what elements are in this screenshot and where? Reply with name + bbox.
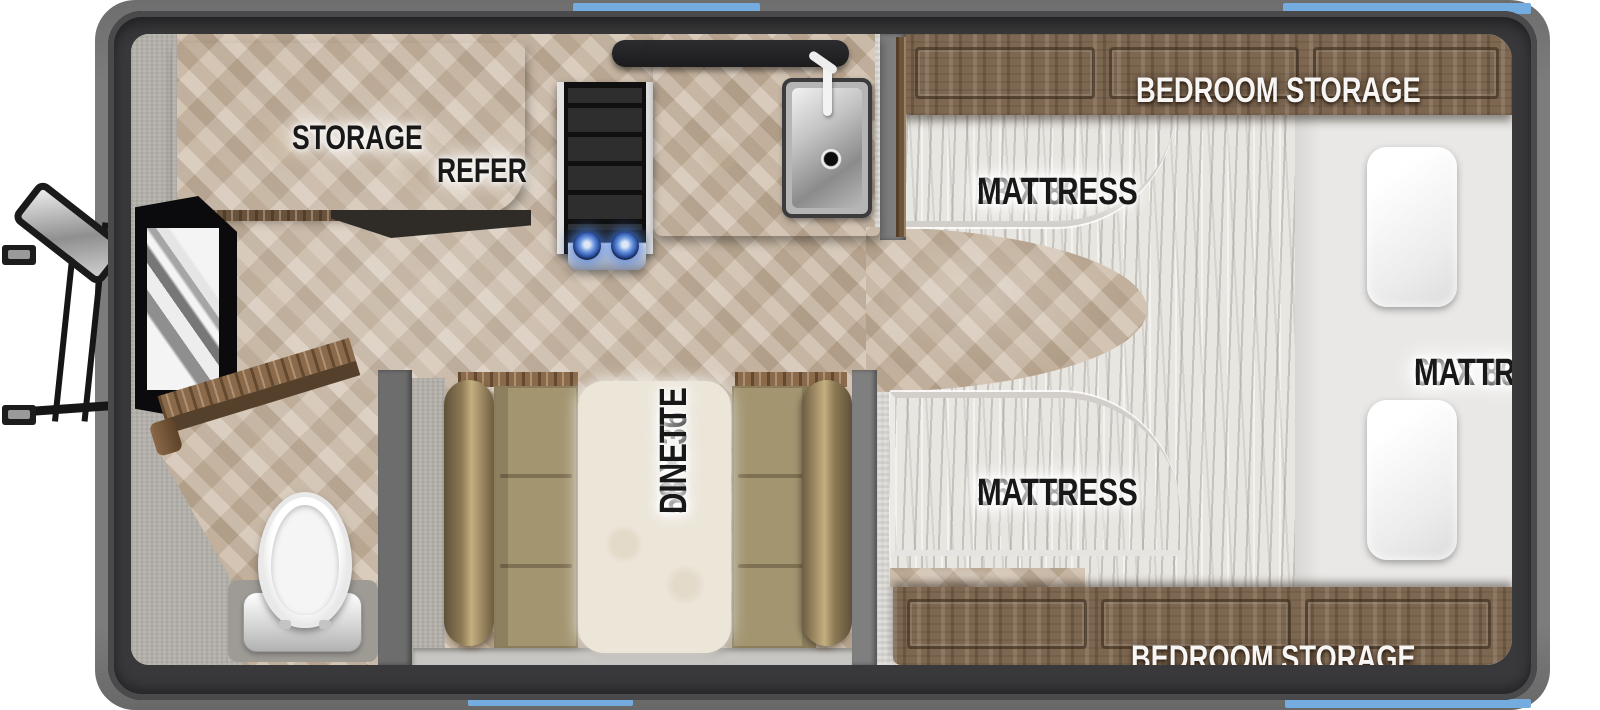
dinette-bench-left — [494, 386, 578, 648]
camper-interior: STORAGE REFER BEDROOM STORAGE BEDROOM ST… — [131, 34, 1512, 665]
cushion-edge — [496, 388, 508, 646]
step-rail — [32, 401, 110, 415]
cushion-seam — [738, 474, 810, 478]
pillow — [1367, 147, 1457, 307]
toilet-lid-inner — [271, 505, 339, 615]
stove-burner — [611, 232, 639, 260]
cabinet-panel — [915, 47, 1095, 99]
dinette-left-wall — [378, 370, 412, 665]
pillow — [1367, 400, 1457, 560]
sink-drain — [820, 148, 842, 170]
dinette-left-wall-liner — [412, 378, 445, 665]
toilet-hinge — [319, 620, 331, 629]
step-bracket — [2, 245, 36, 265]
dinette-right-wall — [852, 370, 877, 665]
dinette-bench-backrest-left — [444, 380, 494, 646]
toilet-hinge — [279, 620, 291, 629]
stove-burner — [573, 232, 601, 260]
door-window — [147, 228, 219, 390]
dinette-bench-backrest-right — [802, 380, 852, 646]
floor-strip-bed — [890, 568, 1085, 587]
cushion-seam — [738, 564, 810, 568]
refrigerator-shelves — [568, 88, 642, 248]
step-bracket — [2, 405, 36, 425]
stove-cooktop — [568, 230, 646, 270]
toilet-lid — [258, 492, 352, 628]
divider-wood-edge — [896, 37, 906, 237]
refrigerator — [557, 82, 653, 254]
floorplan-canvas: STORAGE REFER BEDROOM STORAGE BEDROOM ST… — [0, 0, 1600, 710]
window-strip-bottom-right — [1285, 699, 1531, 708]
cushion-seam — [500, 564, 572, 568]
cabinet-panel — [907, 599, 1087, 649]
cushion-seam — [500, 474, 572, 478]
